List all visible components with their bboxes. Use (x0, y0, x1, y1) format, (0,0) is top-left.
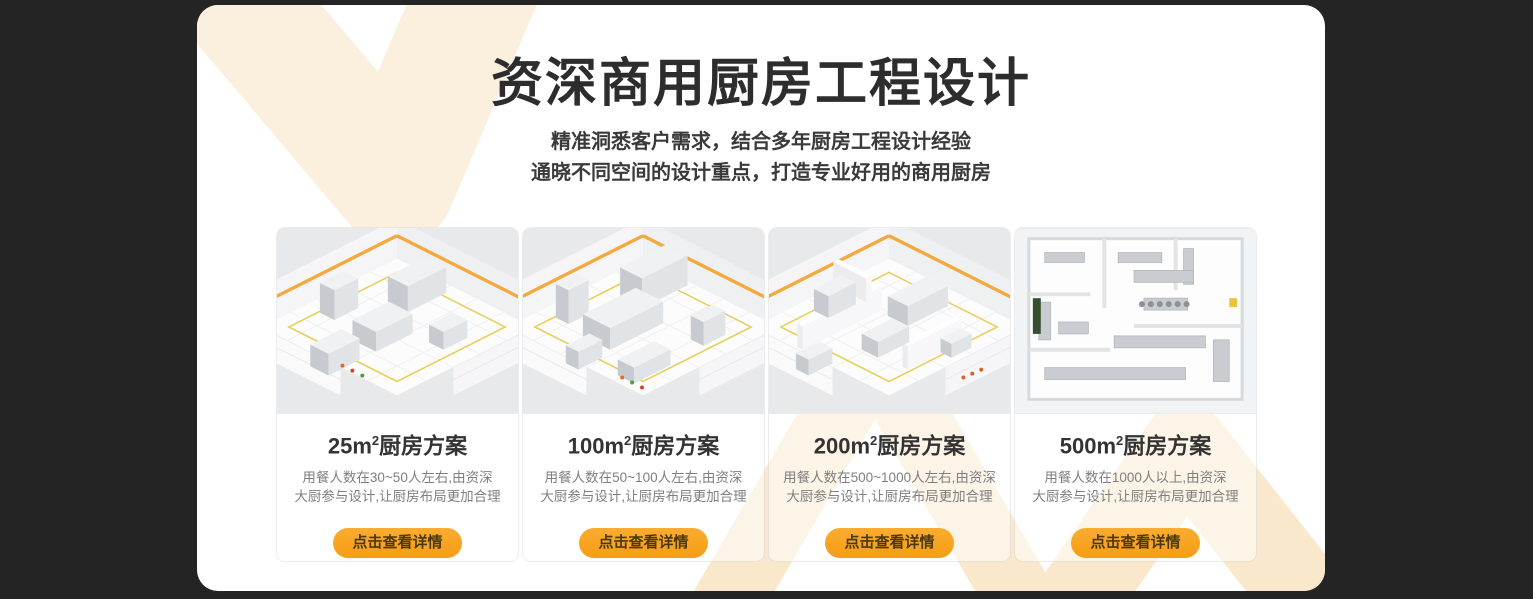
page-title: 资深商用厨房工程设计 (197, 55, 1325, 113)
card-description: 用餐人数在1000人以上,由资深 大厨参与设计,让厨房布局更加合理 (1015, 468, 1256, 506)
plan-card-500sqm: 500m2厨房方案 用餐人数在1000人以上,由资深 大厨参与设计,让厨房布局更… (1014, 227, 1257, 562)
view-details-button[interactable]: 点击查看详情 (579, 528, 708, 558)
200sqm-kitchen-isometric-render (769, 228, 1010, 414)
page-subtitle: 精准洞悉客户需求，结合多年厨房工程设计经验 通晓不同空间的设计重点，打造专业好用… (197, 127, 1325, 189)
plan-card-100sqm: 100m2厨房方案 用餐人数在50~100人左右,由资深 大厨参与设计,让厨房布… (522, 227, 765, 562)
view-details-button[interactable]: 点击查看详情 (825, 528, 954, 558)
subtitle-line-1: 精准洞悉客户需求，结合多年厨房工程设计经验 (551, 131, 971, 153)
card-title: 500m2厨房方案 (1015, 428, 1256, 459)
card-description: 用餐人数在30~50人左右,由资深 大厨参与设计,让厨房布局更加合理 (277, 468, 518, 506)
plan-card-200sqm: 200m2厨房方案 用餐人数在500~1000人左右,由资深 大厨参与设计,让厨… (768, 227, 1011, 562)
view-details-button[interactable]: 点击查看详情 (1071, 528, 1200, 558)
500sqm-kitchen-floorplan-render (1015, 228, 1256, 414)
card-title: 100m2厨房方案 (523, 428, 764, 459)
plan-card-25sqm: 25m2厨房方案 用餐人数在30~50人左右,由资深 大厨参与设计,让厨房布局更… (276, 227, 519, 562)
content-panel: 资深商用厨房工程设计 精准洞悉客户需求，结合多年厨房工程设计经验 通晓不同空间的… (197, 5, 1325, 591)
25sqm-kitchen-isometric-render (277, 228, 518, 414)
card-description: 用餐人数在50~100人左右,由资深 大厨参与设计,让厨房布局更加合理 (523, 468, 764, 506)
card-title: 25m2厨房方案 (277, 428, 518, 459)
card-description: 用餐人数在500~1000人左右,由资深 大厨参与设计,让厨房布局更加合理 (769, 468, 1010, 506)
100sqm-kitchen-isometric-render (523, 228, 764, 414)
view-details-button[interactable]: 点击查看详情 (333, 528, 462, 558)
subtitle-line-2: 通晓不同空间的设计重点，打造专业好用的商用厨房 (531, 162, 991, 184)
card-title: 200m2厨房方案 (769, 428, 1010, 459)
page-background: { "page": { "background_color": "#242424… (0, 0, 1533, 599)
